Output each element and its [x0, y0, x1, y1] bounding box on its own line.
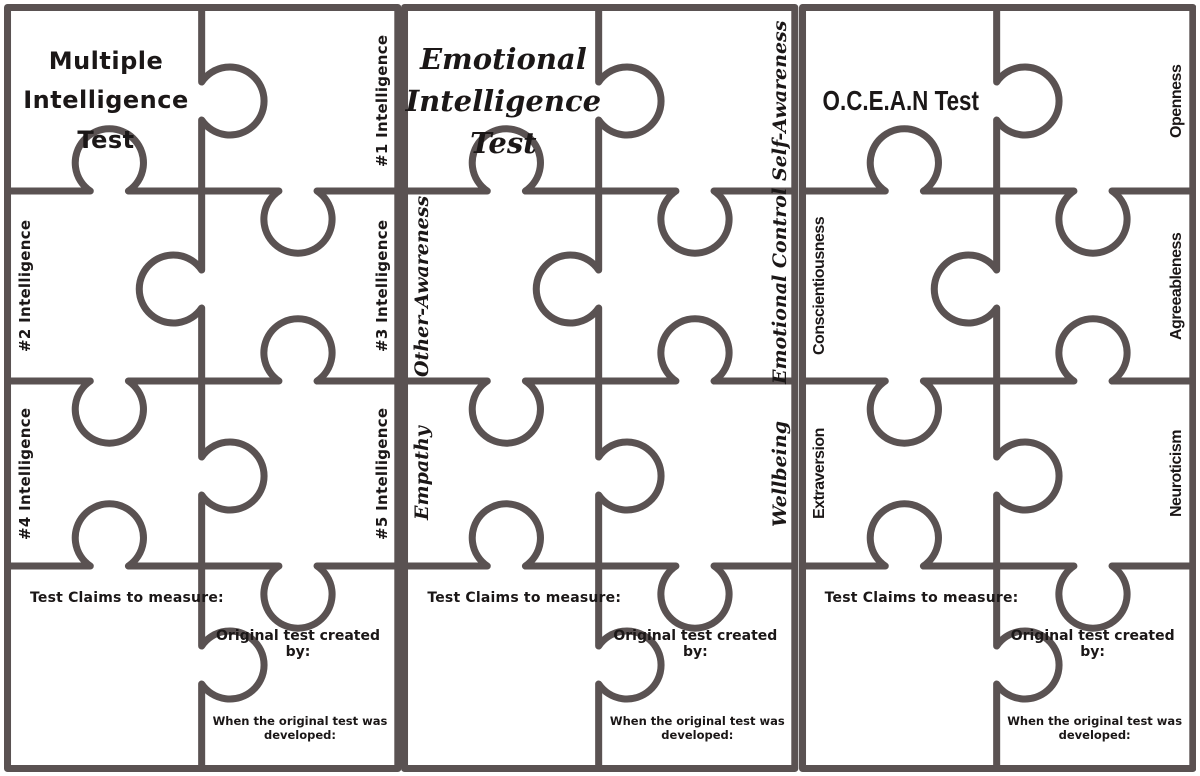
- panel-title: Multiple Intelligence Test: [11, 11, 201, 191]
- title-line: Intelligence: [23, 81, 189, 121]
- vlabel-r2-right: #3 Intelligence: [367, 191, 397, 381]
- puzzle-worksheet: Multiple Intelligence Test #1 Intelligen…: [0, 0, 1200, 776]
- vlabel-r1-right: Openness: [1162, 11, 1192, 191]
- created-by-prompt: Original test created by:: [203, 628, 394, 660]
- vlabel-r3-left: Extraversion: [805, 381, 835, 566]
- vlabel-r3-right: #5 Intelligence: [367, 381, 397, 566]
- claims-prompt: Test Claims to measure:: [825, 590, 1019, 606]
- claims-prompt: Test Claims to measure:: [30, 590, 224, 606]
- panel-multiple-intelligence-test: Multiple Intelligence Test #1 Intelligen…: [4, 4, 401, 772]
- vlabel-r2-left: #2 Intelligence: [10, 191, 40, 381]
- panel-ocean-test: O.C.E.A.N Test Openness Conscientiousnes…: [799, 4, 1196, 772]
- developed-prompt: When the original test was developed:: [604, 714, 791, 742]
- title-line: O.C.E.A.N Test: [822, 84, 978, 118]
- title-line: Intelligence: [406, 80, 601, 122]
- vlabel-r3-right: Neuroticism: [1162, 381, 1192, 566]
- vlabel-r2-right: Emotional Control: [765, 191, 795, 381]
- vlabel-r2-right: Agreeableness: [1162, 191, 1192, 381]
- vlabel-r2-left: Conscientiousness: [805, 191, 835, 381]
- vlabel-r2-left: Other-Awareness: [407, 191, 437, 381]
- panel-title: O.C.E.A.N Test: [806, 11, 996, 191]
- developed-prompt: When the original test was developed:: [1001, 714, 1188, 742]
- title-line: Test: [470, 122, 536, 164]
- vlabel-r1-right: Self-Awareness: [765, 11, 795, 191]
- developed-prompt: When the original test was developed:: [207, 714, 394, 742]
- panel-emotional-intelligence-test: Emotional Intelligence Test Self-Awarene…: [401, 4, 798, 772]
- created-by-prompt: Original test created by:: [997, 628, 1188, 660]
- claims-prompt: Test Claims to measure:: [427, 590, 621, 606]
- created-by-prompt: Original test created by:: [600, 628, 791, 660]
- title-line: Multiple: [49, 42, 164, 82]
- vlabel-r3-left: #4 Intelligence: [10, 381, 40, 566]
- vlabel-r1-right: #1 Intelligence: [367, 11, 397, 191]
- title-line: Emotional: [420, 38, 587, 80]
- title-line: Test: [77, 121, 134, 161]
- panel-title: Emotional Intelligence Test: [408, 11, 598, 191]
- vlabel-r3-left: Empathy: [407, 381, 437, 566]
- vlabel-r3-right: Wellbeing: [765, 381, 795, 566]
